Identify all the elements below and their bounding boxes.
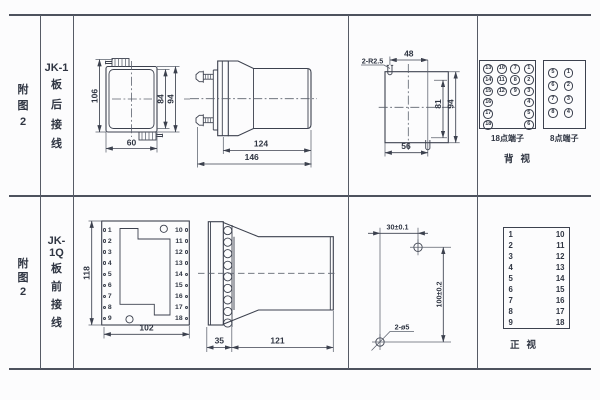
terminal-number: 12 bbox=[175, 249, 183, 256]
figure-label-char: 2 bbox=[9, 285, 37, 299]
table-row: 4 13 bbox=[509, 262, 565, 273]
terminal-dot-icon bbox=[185, 261, 188, 264]
terminal-number-right: 11 bbox=[556, 241, 564, 250]
terminal-number-left: 9 bbox=[509, 318, 513, 327]
front-terminal: 15 bbox=[171, 280, 188, 291]
rule-bottom bbox=[9, 368, 591, 370]
terminal-circle: 2 bbox=[564, 81, 574, 91]
terminal-dot-icon bbox=[185, 273, 188, 276]
terminal-block-8pt: 51627384 bbox=[543, 60, 586, 129]
dim-label: 81 bbox=[433, 99, 443, 109]
terminal-circle: 17 bbox=[483, 109, 493, 119]
terminal-circle: 11 bbox=[497, 75, 507, 85]
terminal-circle: 8 bbox=[548, 108, 558, 118]
terminal-circle: 15 bbox=[483, 87, 493, 97]
terminal-number-left: 6 bbox=[509, 285, 513, 294]
terminal-number: 8 bbox=[108, 304, 112, 311]
terminal-number: 15 bbox=[175, 282, 183, 289]
terminal-circle: 12 bbox=[497, 87, 507, 97]
terminal-number-right: 17 bbox=[556, 307, 565, 316]
terminal-dot-icon bbox=[103, 228, 106, 231]
table-row: 3 12 bbox=[509, 251, 565, 262]
figure-label-char: 2 bbox=[9, 114, 37, 130]
figure-label-char: 图 bbox=[9, 98, 37, 114]
wiring-char: 接 bbox=[41, 116, 73, 136]
terminal-number: 17 bbox=[175, 304, 183, 311]
terminal-dot-icon bbox=[103, 306, 106, 309]
dim-label: 124 bbox=[254, 139, 268, 149]
figure-label-char: 附 bbox=[9, 257, 37, 271]
wiring-type-row1: 板后接线 bbox=[41, 76, 73, 155]
terminal-number: 14 bbox=[175, 271, 183, 278]
figure-label-row1: 附图2 bbox=[9, 82, 37, 130]
terminal-circle: 5 bbox=[548, 68, 558, 78]
front-terminal: 17 bbox=[171, 302, 188, 313]
terminal-circle: 8 bbox=[510, 75, 520, 85]
wiring-char: 板 bbox=[41, 260, 73, 278]
dim-label: 35 bbox=[215, 336, 225, 346]
terminal-number: 11 bbox=[175, 238, 182, 245]
terminal-circle: 7 bbox=[548, 95, 558, 105]
rule-middle bbox=[9, 195, 591, 197]
terminal-number-right: 12 bbox=[556, 252, 565, 261]
figure-label-row2: 附图2 bbox=[9, 257, 37, 300]
wiring-char: 板 bbox=[41, 76, 73, 96]
terminal-circle: 9 bbox=[510, 87, 520, 97]
terminal-dot-icon bbox=[185, 284, 188, 287]
terminal-circle: 3 bbox=[524, 87, 534, 97]
dim-label: 118 bbox=[82, 266, 92, 280]
terminal-block-8pt-label: 8点端子 bbox=[543, 133, 586, 144]
terminal-dot-icon bbox=[103, 250, 106, 253]
front-terminal: 4 bbox=[103, 258, 112, 269]
terminal-number: 3 bbox=[108, 249, 112, 256]
terminal-number-left: 8 bbox=[509, 307, 513, 316]
rule-col-c bbox=[348, 15, 349, 369]
terminal-number-left: 1 bbox=[509, 230, 513, 239]
model-label-jk1q: JK-1Q bbox=[41, 235, 73, 259]
dimensions: 124 146 bbox=[198, 127, 312, 168]
front-terminal: 8 bbox=[103, 302, 112, 313]
wiring-char: 线 bbox=[41, 135, 73, 155]
front-terminal: 14 bbox=[171, 269, 188, 280]
terminal-number-left: 2 bbox=[509, 241, 513, 250]
terminal-number-left: 5 bbox=[509, 274, 513, 283]
dim-label: 30±0.1 bbox=[387, 223, 409, 232]
front-terminals-right: 10 11 12 13 14 15 16 17 18 bbox=[171, 225, 188, 324]
terminal-number-right: 14 bbox=[556, 274, 565, 283]
front-terminal: 9 bbox=[103, 313, 112, 324]
dimensions: 30±0.1 100±0.2 2-ø5 bbox=[368, 223, 443, 351]
rear-view-label: 背视 bbox=[477, 151, 557, 165]
dim-label: 48 bbox=[404, 49, 414, 59]
rear-side-view-drawing: 124 146 bbox=[190, 52, 318, 170]
terminal-circle: 1 bbox=[524, 64, 534, 74]
drilling-plan-drawing: 30±0.1 100±0.2 2-ø5 bbox=[355, 220, 473, 355]
table-row: 5 14 bbox=[509, 273, 565, 284]
hole-diameter-label: 2-ø5 bbox=[395, 323, 410, 332]
terminal-circle: 16 bbox=[483, 98, 493, 108]
terminal-number: 6 bbox=[108, 282, 112, 289]
terminal-dot-icon bbox=[185, 306, 188, 309]
table-row: 8 17 bbox=[509, 306, 565, 317]
terminal-dot-icon bbox=[185, 228, 188, 231]
dimensions: 48 2-R2.5 81 94 56 bbox=[361, 49, 460, 157]
terminal-dot-icon bbox=[103, 261, 106, 264]
terminal-circle: 7 bbox=[510, 64, 520, 74]
dimensions: 106 60 84 94 bbox=[90, 60, 180, 153]
front-side-view-drawing: 35 121 bbox=[195, 218, 340, 353]
terminal-block-18pt: 131071141182151293164175186 bbox=[479, 60, 536, 129]
terminal-circle: 14 bbox=[483, 75, 493, 85]
slot-radius-label: 2-R2.5 bbox=[362, 57, 384, 66]
terminal-circle: 13 bbox=[483, 64, 493, 74]
terminal-number: 13 bbox=[175, 260, 183, 267]
wiring-char: 前 bbox=[41, 278, 73, 296]
dim-label: 100±0.2 bbox=[434, 282, 443, 308]
terminal-number: 9 bbox=[108, 315, 112, 322]
front-terminal: 5 bbox=[103, 269, 112, 280]
drawing-sheet: 附图2 JK-1 板后接线 附图2 JK-1Q 板前接线 106 60 bbox=[0, 0, 600, 400]
terminal-number: 1 bbox=[108, 227, 112, 234]
terminal-number: 18 bbox=[175, 315, 183, 322]
terminal-number: 7 bbox=[108, 293, 112, 300]
terminal-number-right: 15 bbox=[556, 285, 565, 294]
terminal-dot-icon bbox=[103, 295, 106, 298]
table-row: 7 16 bbox=[509, 295, 565, 306]
wiring-char: 后 bbox=[41, 96, 73, 116]
dim-label: 94 bbox=[446, 99, 456, 109]
front-terminal-table: 1 10 2 11 3 12 4 13 5 14 6 15 7 16 8 17 … bbox=[503, 227, 570, 329]
dim-label: 102 bbox=[139, 323, 153, 333]
relay-body bbox=[208, 222, 333, 327]
panel-cutout-drawing: 48 2-R2.5 81 94 56 bbox=[350, 48, 472, 163]
front-terminal: 12 bbox=[171, 247, 188, 258]
terminal-dot-icon bbox=[103, 284, 106, 287]
terminal-circle: 2 bbox=[524, 75, 534, 85]
terminal-number-right: 10 bbox=[556, 230, 565, 239]
terminal-number-left: 4 bbox=[509, 263, 513, 272]
terminal-number-right: 18 bbox=[556, 318, 565, 327]
terminal-circle: 10 bbox=[497, 64, 507, 74]
rule-top bbox=[9, 14, 591, 16]
terminal-number-left: 7 bbox=[509, 296, 513, 305]
terminal-dot-icon bbox=[103, 273, 106, 276]
dim-label: 60 bbox=[127, 137, 137, 147]
front-terminal: 2 bbox=[103, 236, 112, 247]
wiring-type-row2: 板前接线 bbox=[41, 260, 73, 333]
terminal-number-right: 13 bbox=[556, 263, 565, 272]
front-terminal: 18 bbox=[171, 313, 188, 324]
terminal-number-left: 3 bbox=[509, 252, 513, 261]
front-terminal: 6 bbox=[103, 280, 112, 291]
front-terminals-left: 1 2 3 4 5 6 7 8 9 bbox=[103, 225, 112, 324]
wiring-char: 接 bbox=[41, 296, 73, 314]
terminal-grid-8pt: 51627384 bbox=[544, 61, 585, 119]
terminal-circle: 4 bbox=[564, 108, 574, 118]
table-row: 1 10 bbox=[509, 230, 565, 241]
front-terminal: 7 bbox=[103, 291, 112, 302]
terminal-dot-icon bbox=[185, 295, 188, 298]
table-row: 6 15 bbox=[509, 284, 565, 295]
terminal-dot-icon bbox=[103, 239, 106, 242]
front-terminal: 16 bbox=[171, 291, 188, 302]
dim-label: 106 bbox=[90, 89, 100, 103]
front-terminal: 3 bbox=[103, 247, 112, 258]
terminal-dot-icon bbox=[185, 250, 188, 253]
front-terminal: 11 bbox=[171, 236, 188, 247]
figure-label-char: 附 bbox=[9, 82, 37, 98]
dim-label: 146 bbox=[245, 152, 259, 162]
terminal-circle: 5 bbox=[524, 109, 534, 119]
terminal-number-right: 16 bbox=[556, 296, 565, 305]
terminal-number: 10 bbox=[175, 227, 183, 234]
rear-outline-drawing: 106 60 84 94 bbox=[85, 50, 190, 160]
terminal-number: 4 bbox=[108, 260, 112, 267]
model-label-jk1: JK-1 bbox=[41, 62, 73, 74]
dim-label: 56 bbox=[401, 141, 411, 151]
table-row: 2 11 bbox=[509, 240, 565, 251]
terminal-block-18pt-label: 18点端子 bbox=[479, 133, 536, 144]
wiring-char: 线 bbox=[41, 314, 73, 332]
front-terminal: 13 bbox=[171, 258, 188, 269]
dim-label: 84 bbox=[156, 94, 166, 104]
rule-col-b bbox=[73, 15, 74, 369]
dimensions: 35 121 bbox=[207, 311, 333, 352]
table-row: 9 18 bbox=[509, 317, 565, 328]
dim-label: 94 bbox=[166, 94, 176, 104]
front-view-label: 正视 bbox=[488, 337, 558, 351]
terminal-dot-icon bbox=[103, 317, 106, 320]
terminal-grid-18pt: 131071141182151293164175186 bbox=[480, 61, 535, 131]
terminal-dot-icon bbox=[185, 317, 188, 320]
dim-label: 121 bbox=[270, 336, 284, 346]
terminal-number: 5 bbox=[108, 271, 112, 278]
terminal-circle: 6 bbox=[524, 120, 534, 130]
terminal-number: 2 bbox=[108, 238, 112, 245]
terminal-number: 16 bbox=[175, 293, 183, 300]
figure-label-char: 图 bbox=[9, 271, 37, 285]
terminal-circle: 18 bbox=[483, 120, 493, 130]
terminal-dot-icon bbox=[185, 239, 188, 242]
terminal-circle: 4 bbox=[524, 98, 534, 108]
front-terminal: 10 bbox=[171, 225, 188, 236]
terminal-circle: 6 bbox=[548, 81, 558, 91]
terminal-circle: 3 bbox=[564, 95, 574, 105]
front-terminal: 1 bbox=[103, 225, 112, 236]
terminal-circle: 1 bbox=[564, 68, 574, 78]
center-lines bbox=[112, 61, 190, 137]
